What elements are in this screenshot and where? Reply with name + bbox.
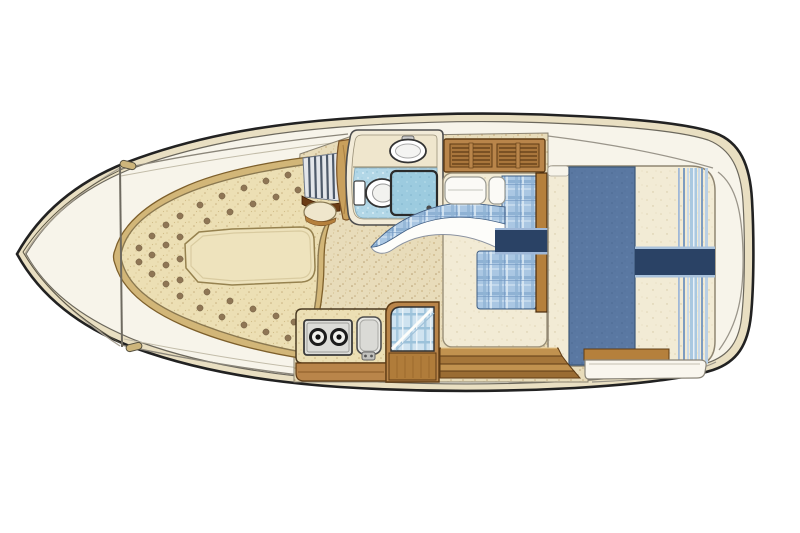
tuft-dot — [136, 245, 142, 251]
tuft-dot — [149, 233, 155, 239]
tuft-dot — [250, 201, 256, 207]
tuft-dot — [227, 298, 233, 304]
tuft-dot — [273, 194, 279, 200]
aft-bed-navy-edge-top — [635, 247, 715, 250]
galley-faucet-knob-left — [364, 355, 367, 358]
bathroom-sink-basin — [396, 144, 421, 158]
tuft-dot — [136, 259, 142, 265]
tuft-dot — [149, 252, 155, 258]
tuft-dot — [163, 222, 169, 228]
engine-hatch — [585, 360, 706, 379]
tuft-dot — [197, 202, 203, 208]
aft-bed-navy-edge-bottom — [635, 275, 715, 278]
aft-bed-navy-band — [635, 249, 715, 275]
tuft-dot — [197, 305, 203, 311]
toilet-tank — [354, 181, 365, 205]
galley-faucet-knob-right — [370, 355, 373, 358]
tuft-dot — [177, 213, 183, 219]
tuft-dot — [163, 262, 169, 268]
aft-wood-strip — [584, 349, 669, 360]
berth-pillow-small — [489, 177, 505, 204]
tuft-dot — [263, 178, 269, 184]
galley-faucet — [362, 352, 375, 360]
tuft-dot — [204, 289, 210, 295]
tuft-dot — [241, 185, 247, 191]
tuft-dot — [295, 187, 301, 193]
port-berth-navy-edge-bottom — [495, 252, 548, 255]
tuft-dot — [241, 322, 247, 328]
tuft-dot — [163, 281, 169, 287]
tuft-dot — [177, 256, 183, 262]
port-berth-navy-band — [495, 230, 548, 252]
tuft-dot — [204, 218, 210, 224]
port-berth-plaid-foot — [477, 251, 536, 309]
stove-burner-left — [309, 328, 327, 346]
tuft-dot — [250, 306, 256, 312]
tuft-dot — [285, 172, 291, 178]
tuft-dot — [149, 271, 155, 277]
step-plank-1 — [440, 348, 562, 356]
aft-bed-blue-blanket — [569, 167, 635, 365]
galley-sink-basin — [360, 320, 378, 351]
aft-bed-headrest-ledge — [548, 166, 569, 176]
boat-floorplan-svg — [0, 0, 800, 533]
floorplan-canvas — [0, 0, 800, 533]
tuft-dot — [227, 209, 233, 215]
step-plank-4 — [440, 371, 580, 378]
tuft-dot — [273, 313, 279, 319]
tuft-dot — [219, 314, 225, 320]
stove-burner-right — [330, 328, 348, 346]
tuft-dot — [177, 293, 183, 299]
step-plank-3 — [440, 364, 574, 371]
louver-stile-left — [469, 143, 473, 168]
tuft-dot — [177, 277, 183, 283]
louver-stile-right — [516, 143, 520, 168]
cabin-steps — [440, 348, 580, 378]
tuft-dot — [263, 329, 269, 335]
tuft-dot — [177, 234, 183, 240]
tuft-dot — [163, 242, 169, 248]
tuft-dot — [285, 335, 291, 341]
step-plank-2 — [440, 356, 568, 364]
tuft-dot — [219, 193, 225, 199]
